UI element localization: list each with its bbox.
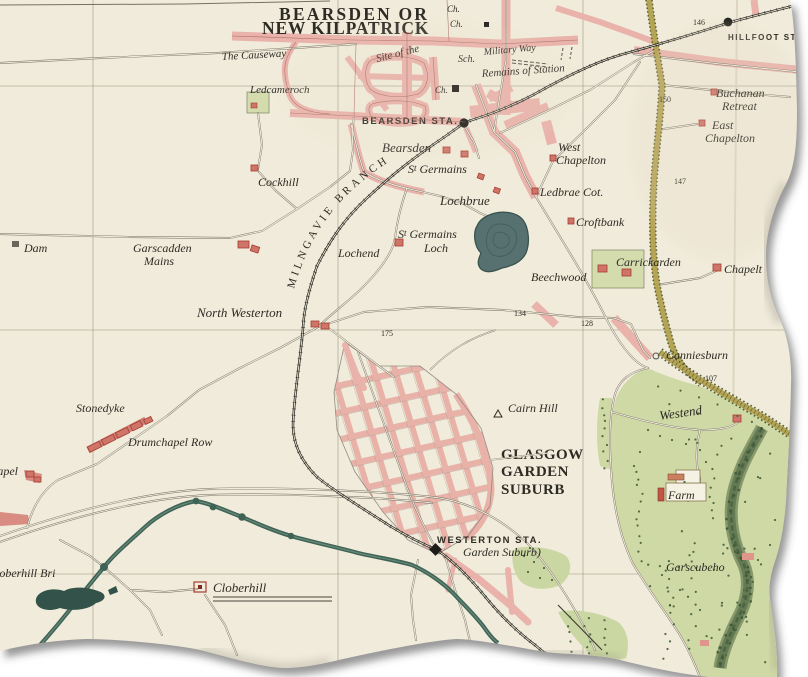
svg-text:Chapelton: Chapelton [556,153,606,167]
svg-text:SUBURB: SUBURB [501,482,565,498]
svg-text:Chapelt: Chapelt [724,262,763,276]
svg-text:107: 107 [705,374,717,383]
svg-text:Dam: Dam [23,241,48,255]
svg-text:Cairn Hill: Cairn Hill [508,401,558,415]
svg-text:Mains: Mains [143,254,174,268]
svg-text:St Germains: St Germains [408,162,467,176]
svg-text:Ch.: Ch. [447,4,460,14]
svg-text:chapel: chapel [0,464,19,478]
svg-text:Canniesburn: Canniesburn [666,348,728,362]
svg-text:Croftbank: Croftbank [576,215,625,229]
svg-text:West: West [558,140,581,154]
svg-text:St Germains: St Germains [398,227,457,241]
svg-text:Cloberhill Bri: Cloberhill Bri [0,566,55,580]
svg-text:175: 175 [381,329,393,338]
svg-text:Garscubeho: Garscubeho [666,560,725,574]
svg-text:Cloberhill: Cloberhill [213,580,267,595]
svg-text:Ledbrae Cot.: Ledbrae Cot. [539,185,603,199]
svg-text:Beechwood: Beechwood [531,270,587,284]
svg-text:Garden Suburb): Garden Suburb) [463,545,541,559]
svg-text:134: 134 [514,309,526,318]
svg-text:GLASGOW: GLASGOW [501,447,584,463]
svg-text:North Westerton: North Westerton [196,305,282,320]
svg-text:GARDEN: GARDEN [501,464,569,480]
svg-text:Cockhill: Cockhill [258,175,299,189]
svg-text:Stonedyke: Stonedyke [76,401,125,415]
svg-text:128: 128 [581,319,593,328]
svg-text:Loch: Loch [423,241,448,255]
svg-text:Garscadden: Garscadden [133,241,192,255]
svg-text:Drumchapel Row: Drumchapel Row [127,435,212,449]
svg-text:Lochbrue: Lochbrue [439,193,490,208]
svg-text:Farm: Farm [667,488,695,502]
svg-text:Lochend: Lochend [337,246,380,260]
svg-text:Carrickarden: Carrickarden [616,255,681,269]
